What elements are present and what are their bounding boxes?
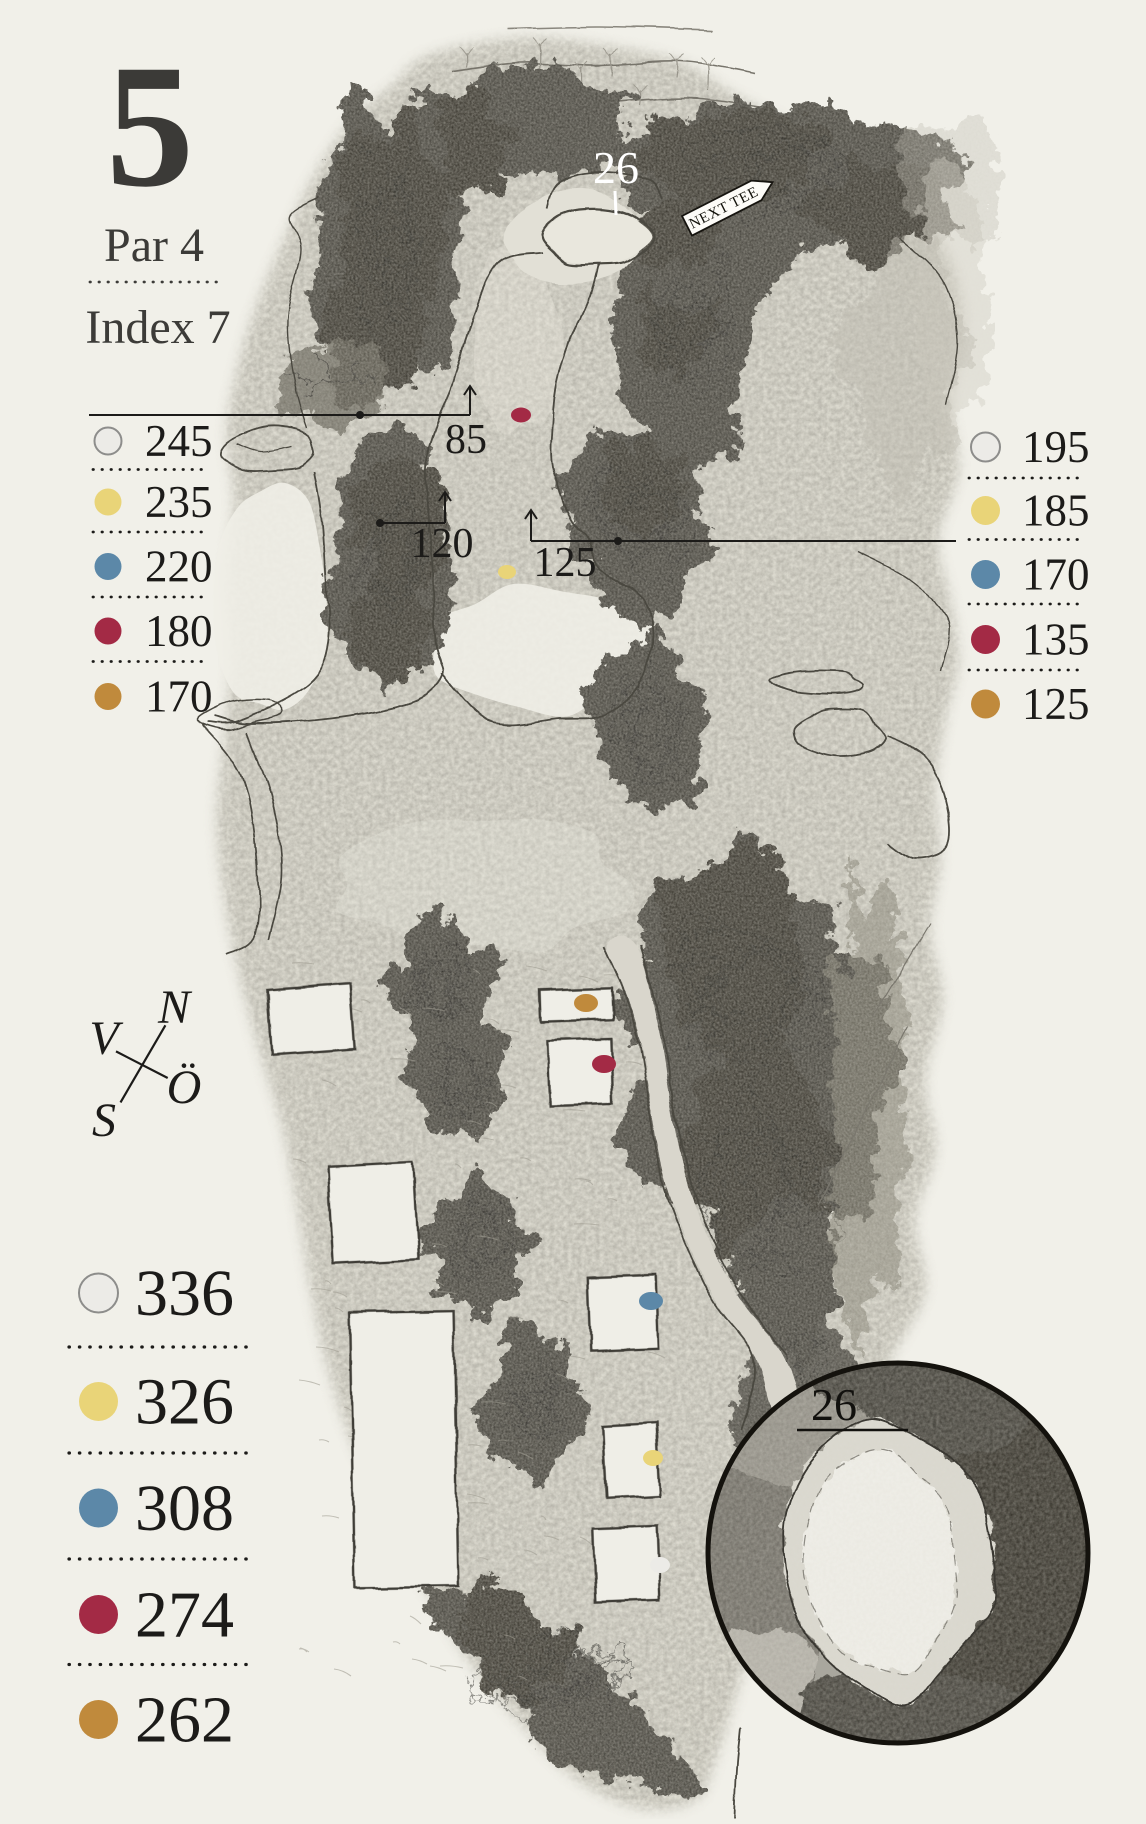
svg-text:336: 336 xyxy=(135,1257,234,1330)
svg-text:274: 274 xyxy=(135,1579,234,1652)
svg-text:5: 5 xyxy=(106,29,194,224)
svg-text:235: 235 xyxy=(145,477,213,527)
svg-text:180: 180 xyxy=(145,606,213,656)
svg-text:120: 120 xyxy=(411,521,474,567)
svg-text:220: 220 xyxy=(145,542,213,592)
svg-text:135: 135 xyxy=(1022,615,1090,665)
svg-text:Index 7: Index 7 xyxy=(85,301,230,354)
svg-text:26: 26 xyxy=(593,142,639,193)
svg-text:26: 26 xyxy=(811,1379,857,1430)
svg-text:125: 125 xyxy=(1022,679,1090,729)
svg-text:245: 245 xyxy=(145,416,213,466)
svg-text:Par 4: Par 4 xyxy=(104,219,204,272)
svg-text:N: N xyxy=(157,981,193,1034)
svg-text:185: 185 xyxy=(1022,486,1090,536)
svg-text:125: 125 xyxy=(534,540,597,586)
svg-text:308: 308 xyxy=(135,1472,234,1545)
svg-text:326: 326 xyxy=(135,1366,234,1439)
svg-text:V: V xyxy=(89,1012,123,1065)
svg-text:Ö: Ö xyxy=(167,1061,202,1114)
svg-text:170: 170 xyxy=(1022,550,1090,600)
svg-text:170: 170 xyxy=(145,672,213,722)
svg-text:262: 262 xyxy=(135,1684,234,1757)
svg-text:85: 85 xyxy=(445,417,487,463)
svg-text:195: 195 xyxy=(1022,422,1090,472)
svg-text:S: S xyxy=(92,1094,116,1147)
